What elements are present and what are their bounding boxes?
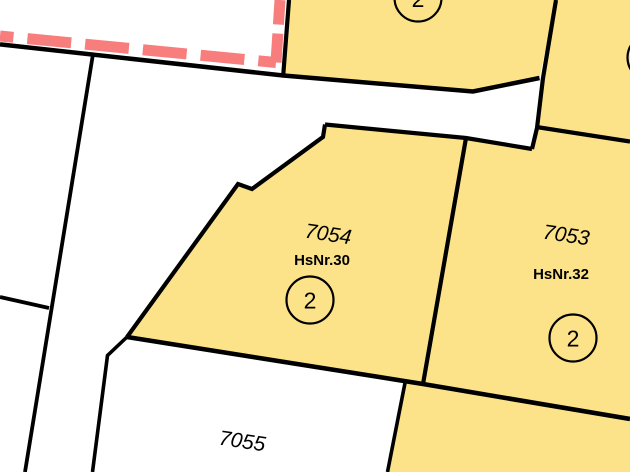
svg-text:2: 2 bbox=[412, 0, 425, 12]
svg-text:HsNr.30: HsNr.30 bbox=[294, 252, 350, 269]
svg-text:2: 2 bbox=[304, 288, 317, 314]
svg-text:HsNr.32: HsNr.32 bbox=[533, 266, 589, 283]
svg-text:2: 2 bbox=[567, 326, 580, 352]
